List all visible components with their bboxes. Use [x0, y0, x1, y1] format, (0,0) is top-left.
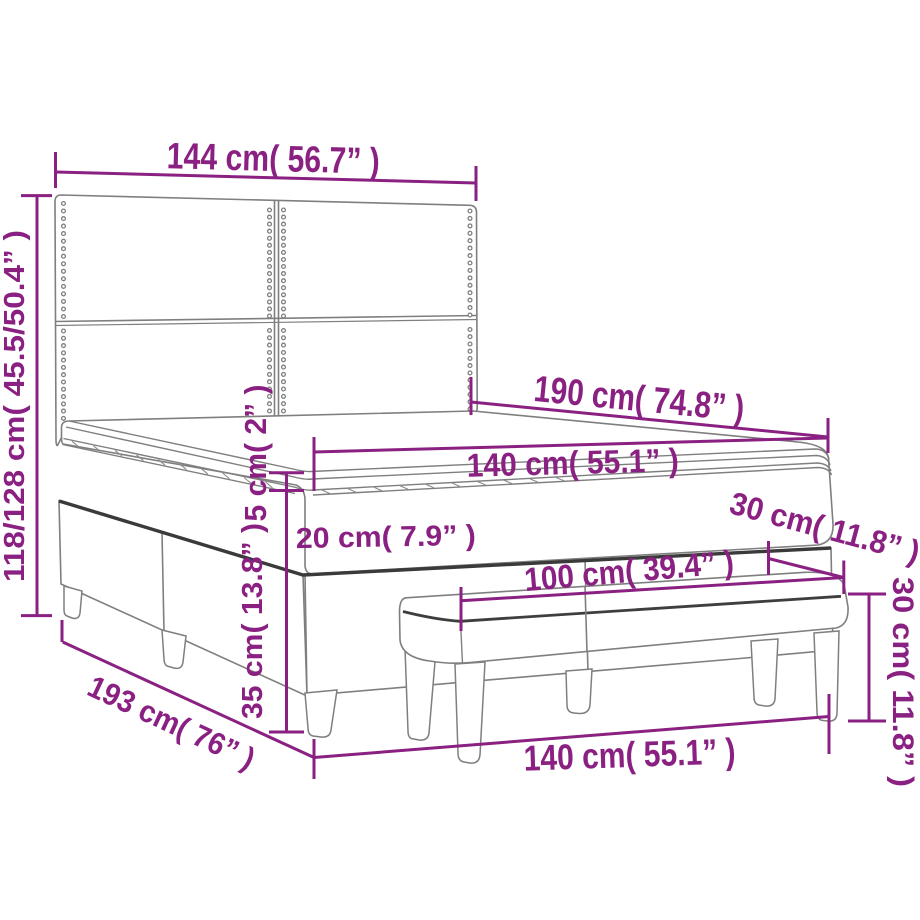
svg-text:35 cm( 13.8” ): 35 cm( 13.8” )	[237, 523, 269, 719]
svg-text:20 cm( 7.9” ): 20 cm( 7.9” )	[296, 520, 477, 555]
svg-text:30 cm( 11.8” ): 30 cm( 11.8” )	[886, 577, 919, 787]
svg-text:144 cm( 56.7” ): 144 cm( 56.7” )	[166, 135, 380, 182]
svg-text:5 cm( 2” ): 5 cm( 2” )	[238, 385, 273, 522]
svg-text:140 cm( 55.1” ): 140 cm( 55.1” )	[523, 730, 736, 778]
svg-text:118/128 cm( 45.5/50.4” ): 118/128 cm( 45.5/50.4” )	[0, 230, 31, 582]
svg-text:140 cm( 55.1” ): 140 cm( 55.1” )	[466, 441, 679, 484]
